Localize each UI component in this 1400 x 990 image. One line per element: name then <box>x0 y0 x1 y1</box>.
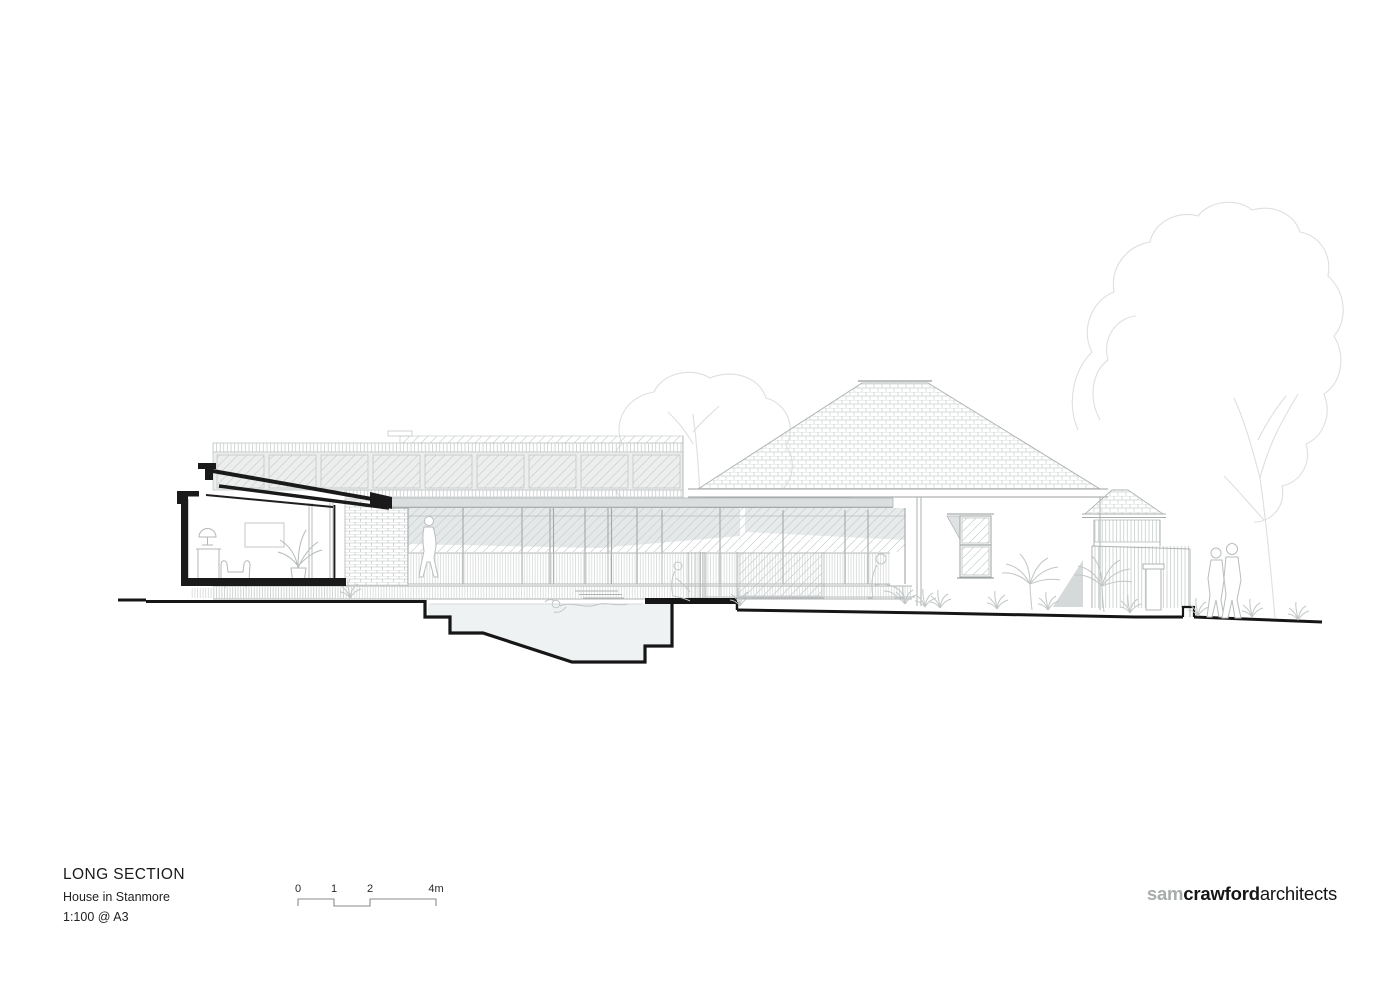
double-hung-window <box>947 514 994 578</box>
logo-architects: architects <box>1260 883 1337 904</box>
pool-coping <box>645 598 737 604</box>
scale-label-1: 1 <box>331 883 337 895</box>
scale-note: 1:100 @ A3 <box>63 910 185 924</box>
flat-roof-band <box>388 498 893 508</box>
pedestrians <box>1207 544 1241 619</box>
scale-label-2: 2 <box>367 883 373 895</box>
drawing-sheet: LONG SECTION House in Stanmore 1:100 @ A… <box>0 0 1400 990</box>
clerestory-windows <box>213 431 683 499</box>
brick-pier <box>345 499 408 586</box>
scale-bar: 0 1 2 4m <box>293 882 463 916</box>
pool-balustrade <box>408 553 890 584</box>
batten-fence <box>1092 546 1190 617</box>
scale-label-0: 0 <box>295 883 301 895</box>
subfloor-hatch <box>190 588 344 598</box>
logo-sam: sam <box>1147 883 1183 904</box>
letterbox-post <box>1143 564 1164 610</box>
project-name: House in Stanmore <box>63 890 185 904</box>
title-block: LONG SECTION House in Stanmore 1:100 @ A… <box>63 866 185 924</box>
rear-outbuilding <box>1082 490 1166 546</box>
long-section-drawing <box>0 0 1400 990</box>
palm-tree <box>1002 554 1060 610</box>
scale-label-4m: 4m <box>428 883 443 895</box>
swimming-pool-section <box>425 598 737 662</box>
firm-logo: samcrawfordarchitects <box>1147 883 1337 905</box>
hipped-tile-roof <box>698 383 1100 489</box>
drawing-title: LONG SECTION <box>63 866 185 884</box>
logo-crawford: crawford <box>1183 883 1260 904</box>
scale-bar-rule <box>298 899 436 906</box>
